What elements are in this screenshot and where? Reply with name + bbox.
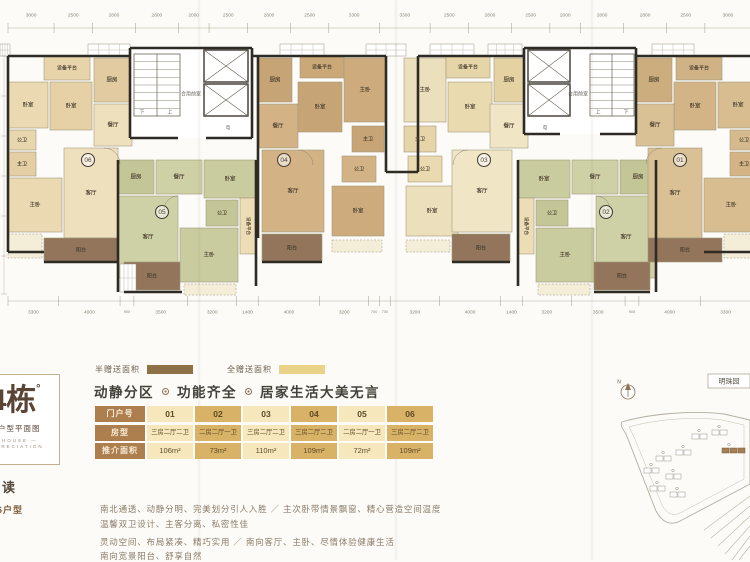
highlighted-building: [730, 448, 737, 453]
table-cell: 二房二厅一卫: [195, 425, 241, 441]
dim-bottom-value: 700: [371, 310, 377, 314]
table-cell: 73m²: [195, 443, 241, 459]
room-label: 厨房: [130, 172, 142, 180]
dim-top-value: 3300: [349, 12, 360, 18]
room-label: 设备平台: [458, 63, 478, 70]
room-label: 卧室: [352, 206, 364, 214]
building-marker-dot: [682, 445, 685, 448]
bay-window: [332, 240, 382, 252]
dim-top-value: 2500: [68, 12, 79, 18]
room-label: 公卫: [420, 166, 430, 172]
dim-top-value: 3000: [723, 12, 734, 18]
room-label: 主卫: [363, 135, 373, 142]
core-label: 合用前室: [568, 90, 588, 97]
room-label: 餐厅: [649, 120, 661, 128]
building-footprint: [664, 456, 671, 461]
building-number: 4栋°: [0, 384, 59, 416]
table-cell: 110m²: [243, 443, 289, 459]
table-row-label: 房型: [95, 425, 145, 441]
headline-part-2: 功能齐全: [177, 381, 237, 401]
core-label: 电: [226, 124, 231, 130]
table-row-label: 推介面积: [95, 443, 145, 459]
room-label: 卧室: [65, 101, 77, 109]
notes-title: 解读: [0, 477, 17, 496]
unit-number: 01: [676, 157, 684, 164]
table-cell: 三房二厅二卫: [147, 425, 193, 441]
headline-part-3: 居家生活大美无言: [260, 381, 380, 401]
table-cell: 三房二厅二卫: [291, 425, 337, 441]
table-cell: 06: [387, 406, 433, 422]
core-label: 下: [139, 109, 144, 115]
highlighted-building: [722, 448, 729, 453]
room-label: 设备平台: [312, 63, 332, 70]
table-cell: 109m²: [291, 443, 337, 459]
room-label: 厨房: [503, 75, 515, 83]
room-label: 餐厅: [503, 121, 515, 129]
room-label: 设备平台: [689, 64, 709, 71]
table-row: 推介面积106m²73m²110m²109m²72m²109m²: [95, 443, 433, 459]
room-label: 设备平台: [57, 64, 77, 71]
room-label: 主卧: [29, 200, 41, 208]
dim-top-value: 2500: [525, 12, 536, 18]
dim-bottom-value: 900: [629, 310, 635, 314]
room-label: 厨房: [632, 172, 644, 180]
unit-number: 04: [280, 157, 288, 164]
bullet-icon: [245, 388, 252, 395]
dim-bottom-value: 4000: [664, 309, 675, 315]
table-cell: 03: [243, 406, 289, 422]
dim-bottom-value: 900: [124, 310, 130, 314]
room-label: 公卫: [354, 166, 364, 172]
table-cell: 04: [291, 406, 337, 422]
dim-top-value: 2800: [640, 12, 651, 18]
dim-bottom-value: 1400: [242, 309, 253, 315]
room-label: 厨房: [648, 75, 660, 83]
core-label: 合用前室: [181, 90, 201, 97]
building-marker-dot: [672, 469, 675, 472]
dim-bottom-value: 4000: [465, 309, 476, 315]
road-hatch: [725, 526, 750, 554]
dim-top-value: 2000: [560, 12, 571, 18]
dim-bottom-value: 3500: [155, 309, 166, 315]
dim-top-value: 2800: [264, 12, 275, 18]
building-footprint: [656, 456, 663, 461]
dim-bottom-value: 3300: [28, 309, 39, 315]
room-label: 客厅: [669, 188, 681, 196]
dim-top-value: 2800: [109, 12, 120, 18]
unit-number: 06: [84, 157, 92, 164]
room-label: 餐厅: [173, 172, 185, 180]
site-map: N明珠园: [612, 368, 750, 560]
dim-bottom-value: 3200: [541, 309, 552, 315]
dim-top-value: 2800: [485, 12, 496, 18]
table-row: 门户号010203040506: [95, 406, 433, 422]
building-footprint: [678, 492, 685, 497]
room-label: 主卧: [559, 250, 571, 258]
room-label: 公卫: [17, 137, 27, 143]
room-label: 厨房: [269, 75, 281, 83]
building-footprint: [666, 474, 673, 479]
room-label: 公卫: [739, 137, 749, 143]
notes-line: 南向宽景阳台、舒享自然: [100, 550, 202, 562]
room-label: 阳台: [76, 246, 86, 253]
brochure-page: { "palette":{"accent_brown":"#ad7f4e","t…: [0, 0, 750, 560]
dim-top-value: 2500: [444, 12, 455, 18]
building-footprint: [674, 474, 681, 479]
room-label: 公卫: [547, 210, 557, 216]
building-footprint: [684, 450, 691, 455]
building-footprint: [670, 492, 677, 497]
legend-full-swatch: [279, 365, 325, 374]
building-footprint: [720, 430, 727, 435]
table-cell: 109m²: [387, 443, 433, 459]
room-label: 客厅: [287, 186, 299, 194]
table-cell: 05: [339, 406, 385, 422]
building-footprint: [650, 486, 657, 491]
table-cell: 72m²: [339, 443, 385, 459]
dim-bottom-value: 4000: [284, 309, 295, 315]
north-label: N: [617, 379, 621, 385]
core-label: 电: [543, 124, 548, 130]
logo-appreciation-label: APPRECIATION: [0, 444, 59, 449]
room-label: 卧室: [426, 206, 438, 214]
building-marker-dot: [656, 481, 659, 484]
core-label: 下: [623, 109, 628, 115]
legend-full-label: 全赠送面积: [227, 364, 272, 375]
dim-bottom-value: 4000: [84, 309, 95, 315]
core-label: 上: [167, 108, 172, 115]
notes-line: 南北通透、动静分明、完美划分引人入胜 ／ 主次卧带情景飘窗、精心营造空间温度: [100, 503, 441, 515]
unit-number: 03: [480, 157, 488, 164]
dim-bottom-value: 3200: [207, 309, 218, 315]
building-footprint: [692, 434, 699, 439]
unit-table: 门户号010203040506房型三房二厅二卫二房二厅一卫三房二厅二卫三房二厅二…: [95, 406, 433, 462]
table-cell: 106m²: [147, 443, 193, 459]
building-footprint: [700, 434, 707, 439]
dim-top-value: 2500: [680, 12, 691, 18]
bay-window: [184, 284, 236, 295]
dim-top-value: 2500: [304, 12, 315, 18]
room-label: 卧室: [689, 101, 701, 109]
room-label: 客厅: [476, 186, 488, 194]
room-label: 卧室: [22, 100, 34, 108]
table-cell: 02: [195, 406, 241, 422]
room-label: 餐厅: [589, 172, 601, 180]
room-label: 主卫: [17, 160, 27, 167]
dim-bottom-value: 3200: [409, 309, 420, 315]
dim-top-value: 2800: [597, 12, 608, 18]
dim-bottom-value: 700: [382, 310, 388, 314]
unit-number: 02: [602, 209, 610, 216]
room-label: 阳台: [680, 246, 690, 253]
area-legend: 半赠送面积 全赠送面积: [95, 364, 359, 375]
room-label: 主卧: [419, 85, 431, 93]
site-name-label: 明珠园: [719, 376, 740, 385]
floorplan-canvas: 设备平台卧室卧室厨房餐厅公卫主卫主卧客厅阳台厨房餐厅卧室公卫客厅主卧设备平台阳台…: [0, 0, 750, 330]
legend-half-swatch: [147, 365, 193, 374]
room-label: 阳台: [287, 244, 297, 251]
building-marker-dot: [662, 451, 665, 454]
table-row-label: 门户号: [95, 406, 145, 422]
room-label: 卧室: [464, 102, 476, 110]
site-boundary-outer: [621, 412, 750, 523]
building-marker-dot: [676, 487, 679, 490]
building-marker-dot: [698, 429, 701, 432]
building-footprint: [652, 468, 659, 473]
notes-line: 温馨双卫设计、主客分离、私密性佳: [100, 518, 249, 530]
room-label: 主卫: [415, 135, 425, 142]
table-row: 房型三房二厅二卫二房二厅一卫三房二厅二卫三房二厅二卫二房二厅一卫三房二厅二卫: [95, 425, 433, 441]
headline: 动静分区 功能齐全 居家生活大美无言: [94, 381, 380, 401]
building-marker-dot: [728, 443, 731, 446]
room-label: 公卫: [217, 210, 227, 216]
room-label: 餐厅: [272, 121, 284, 129]
legend-half-label: 半赠送面积: [95, 364, 140, 375]
room-label: 卧室: [538, 174, 550, 182]
room-label: 厨房: [106, 75, 118, 83]
table-cell: 三房二厅二卫: [387, 425, 433, 441]
table-cell: 三房二厅二卫: [243, 425, 289, 441]
dim-top-value: 3300: [399, 12, 410, 18]
dim-top-value: 2800: [152, 12, 163, 18]
room-label: 客厅: [85, 188, 97, 196]
building-footprint: [712, 430, 719, 435]
room-label: 阳台: [617, 272, 627, 279]
bay-window: [538, 284, 590, 295]
logo-subtitle: 层户型平面图: [0, 423, 59, 434]
room-label: 主卧: [725, 200, 737, 208]
bullet-icon: [162, 388, 169, 395]
room-label: 卧室: [224, 174, 236, 182]
room-label: 主卧: [359, 85, 371, 93]
room-label: 主卫: [739, 160, 749, 167]
room-label: 餐厅: [107, 120, 119, 128]
bay-window: [8, 234, 42, 258]
table-cell: 二房二厅一卫: [339, 425, 385, 441]
dim-bottom-value: 3500: [593, 309, 604, 315]
table-cell: 01: [147, 406, 193, 422]
road-hatch: [732, 536, 750, 560]
room-label: 卧室: [732, 100, 744, 108]
notes-unit-label: 06户型: [0, 503, 23, 516]
core-label: 上: [595, 108, 600, 115]
dim-top-value: 3000: [26, 12, 37, 18]
building-logo: 4栋° 层户型平面图 — HOUSE — APPRECIATION: [0, 374, 60, 465]
dim-bottom-value: 1400: [506, 309, 517, 315]
dim-top-value: 2500: [223, 12, 234, 18]
building-marker-dot: [718, 425, 721, 428]
room-label: 设备平台: [523, 217, 530, 235]
building-footprint: [658, 486, 665, 491]
building-marker-dot: [650, 463, 653, 466]
unit-number: 05: [158, 209, 166, 216]
notes-line: 灵动空间、布局紧凑、精巧实用 ／ 南向客厅、主卧、尽情体验健康生活: [100, 536, 395, 548]
room-label: 客厅: [142, 232, 154, 240]
building-footprint: [676, 450, 683, 455]
highlighted-building: [738, 448, 745, 453]
room-label: 客厅: [620, 232, 632, 240]
room-label: 设备平台: [245, 217, 252, 235]
bay-window: [724, 234, 750, 258]
dim-bottom-value: 3300: [720, 309, 731, 315]
dim-top-value: 2000: [188, 12, 199, 18]
dim-bottom-value: 3200: [339, 309, 350, 315]
room-label: 阳台: [147, 272, 157, 279]
room-label: 主卧: [203, 250, 215, 258]
building-footprint: [644, 468, 651, 473]
room-label: 阳台: [476, 244, 486, 251]
bay-window: [406, 240, 450, 252]
room-label: 卧室: [314, 102, 326, 110]
headline-part-1: 动静分区: [94, 381, 154, 401]
logo-house-label: — HOUSE —: [0, 438, 59, 443]
